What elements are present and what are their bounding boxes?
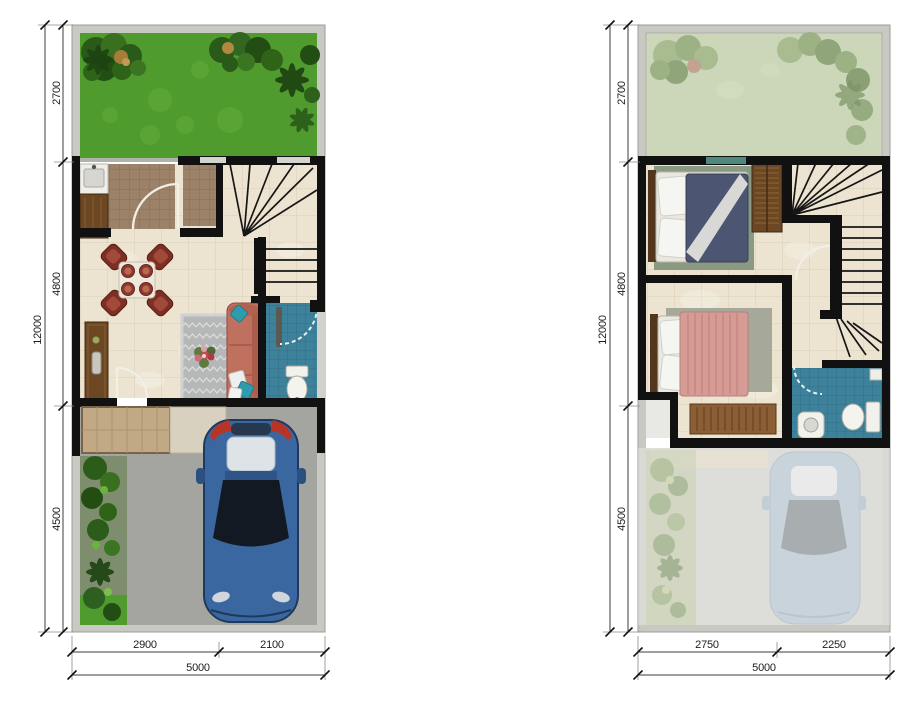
gf-dim-seg-2900: 2900 xyxy=(133,639,157,651)
gf-carport xyxy=(80,407,317,625)
gf-garden xyxy=(80,32,320,158)
sofa xyxy=(227,303,263,405)
uf-dimensions-vertical: 12000 2700 4800 4500 xyxy=(597,21,640,637)
gf-dim-seg-4800: 4800 xyxy=(51,272,63,296)
ground-floor-plan: 12000 2700 4800 4500 2900 2100 5000 xyxy=(32,21,330,681)
palm-icon xyxy=(275,63,309,97)
palm-icon xyxy=(835,80,865,110)
car xyxy=(196,420,306,622)
uf-dim-total-width: 5000 xyxy=(752,662,776,674)
gf-dim-seg-2100: 2100 xyxy=(260,639,284,651)
uf-dim-seg-2750: 2750 xyxy=(695,639,719,651)
floor-plan-drawing: 12000 2700 4800 4500 2900 2100 5000 xyxy=(0,0,919,717)
gf-bathroom xyxy=(266,303,317,402)
gf-dimensions-horizontal: 2900 2100 5000 xyxy=(68,636,330,680)
carport-planting xyxy=(80,456,127,625)
toilet-icon xyxy=(286,366,308,402)
uf-dim-seg-2700: 2700 xyxy=(616,81,628,105)
palm-icon xyxy=(86,558,114,586)
uf-void xyxy=(646,400,670,438)
gf-dim-total-height: 12000 xyxy=(32,315,44,345)
side-mirror xyxy=(297,468,306,484)
floor-plan-sheet: 12000 2700 4800 4500 2900 2100 5000 xyxy=(0,0,919,717)
window xyxy=(706,157,746,164)
windshield xyxy=(213,480,289,547)
bath-shelf xyxy=(870,369,882,380)
gf-dim-seg-4500: 4500 xyxy=(51,507,63,531)
uf-dim-seg-4500: 4500 xyxy=(616,507,628,531)
gf-dimensions-vertical: 12000 2700 4800 4500 xyxy=(32,21,74,637)
upper-floor-plan: 12000 2700 4800 4500 2750 2250 5000 xyxy=(597,21,895,681)
uf-dim-seg-2250: 2250 xyxy=(822,639,846,651)
gf-dim-total-width: 5000 xyxy=(186,662,210,674)
uf-carport-faded xyxy=(638,448,890,625)
dresser xyxy=(690,404,776,434)
uf-dimensions-horizontal: 2750 2250 5000 xyxy=(634,636,895,680)
side-mirror xyxy=(196,468,205,484)
gf-dim-seg-2700: 2700 xyxy=(51,81,63,105)
uf-garden-faded xyxy=(646,32,882,158)
faucet-icon xyxy=(92,165,96,169)
car-roof xyxy=(227,437,275,471)
headboard xyxy=(650,314,658,392)
palm-icon xyxy=(83,45,113,75)
bathroom-door-leaf xyxy=(276,307,282,347)
uf-bathroom xyxy=(792,366,882,438)
headboard xyxy=(648,170,656,262)
uf-dim-seg-4800: 4800 xyxy=(616,272,628,296)
uf-dim-total-height: 12000 xyxy=(597,315,609,345)
